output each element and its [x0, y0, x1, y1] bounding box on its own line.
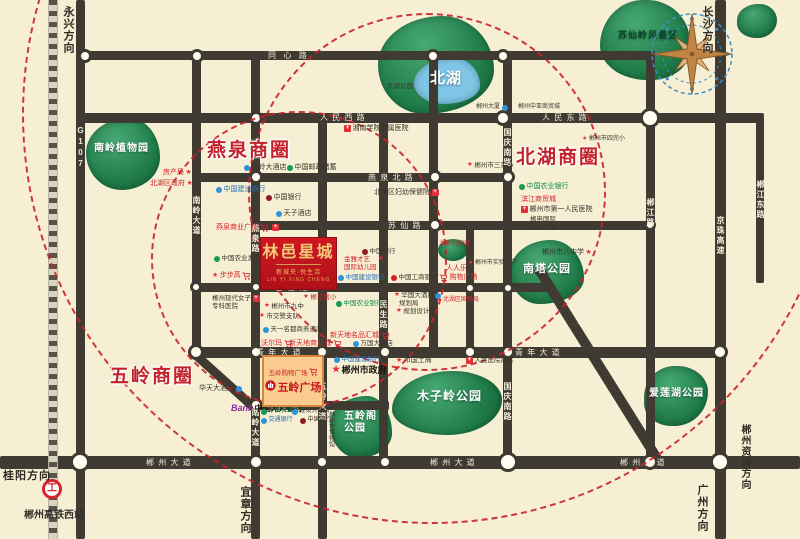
poi-text: 中国银行: [370, 248, 396, 256]
bank-dot-icon: [334, 357, 340, 363]
poi-label: 中国建设银行: [216, 186, 266, 195]
poi-text: 天子酒店: [284, 210, 312, 219]
direction-label: 广州方向: [694, 484, 710, 532]
business-district-label: 五岭商圈: [110, 361, 194, 388]
bank-dot-icon: [362, 249, 368, 255]
shopping-cart-icon: [381, 332, 390, 340]
poi-text: 郴江南小: [310, 294, 336, 302]
poi-label: +人民医院南院: [466, 357, 514, 365]
poi-text: 北湖公园: [387, 83, 413, 91]
bank-dot-icon: [292, 409, 298, 415]
road-label: 燕 泉 北 路: [368, 174, 414, 182]
star-icon: ★: [467, 162, 473, 169]
bank-dot-icon: [336, 301, 342, 307]
road-label: 郴 州 大 道: [430, 459, 476, 467]
poi-text: 中国建设银行: [346, 274, 385, 282]
poi-label: 郴州市博物馆: [326, 411, 334, 447]
wuling-plaza-block: 五岭购物广场 五岭广场: [262, 355, 324, 407]
poi-text: 湘南学院附属医院: [353, 125, 409, 134]
shopping-cart-icon: [333, 340, 342, 348]
bank-logo-icon: Bank: [231, 404, 253, 413]
road-label: G107: [76, 126, 84, 170]
park-label: 南岭植物园: [94, 143, 149, 155]
poi-label: 中国工商银行: [391, 274, 438, 282]
star-icon: ★: [396, 357, 402, 364]
poi-label: +郴州市第一人民医院: [521, 206, 593, 215]
hospital-cross-icon: +: [253, 295, 260, 302]
star-icon: ★: [396, 308, 402, 315]
poi-label: 房产局★: [163, 169, 192, 178]
road-junction: [710, 452, 730, 472]
poi-text: 中国农业银行: [344, 300, 383, 308]
poi-text: 华天大酒店: [199, 385, 234, 394]
star-icon: ★: [586, 249, 592, 256]
star-icon: ★: [259, 313, 265, 320]
poi-label: ★市国土局: [396, 357, 432, 366]
poi-text: 中国邮政储蓄: [295, 164, 337, 173]
poi-label: 郴电国际 翡翠广场: [530, 216, 556, 232]
poi-text: 郴州大厦: [476, 104, 500, 112]
poi-label: 燕泉商业广场: [216, 224, 269, 233]
poi-label: 北湖区政府★: [150, 180, 193, 189]
hospital-cross-icon: +: [272, 224, 279, 231]
bank-dot-icon: [502, 105, 508, 111]
park-label: 五岭阁 公园: [344, 411, 377, 434]
poi-label: 天子酒店: [276, 210, 312, 219]
bank-dot-icon: [261, 409, 267, 415]
poi-label: 万国大酒店: [353, 340, 393, 348]
road-label: 青 年 大 道: [515, 349, 561, 357]
poi-text: 交通银行: [269, 417, 293, 425]
bank-dot-icon: [216, 187, 222, 193]
star-icon: ★: [187, 180, 193, 187]
building-icon: [265, 380, 276, 394]
road-label: 人 民 西 路: [320, 114, 366, 122]
poi-text: 市国土局: [404, 357, 432, 366]
star-icon: ★: [212, 272, 218, 279]
poi-label: ★步步高: [212, 272, 251, 281]
bank-dot-icon: [300, 418, 306, 424]
poi-label: ★北湖区国税局: [436, 297, 479, 305]
road-label: 南岭大道: [192, 196, 200, 236]
road-label: 南塔路: [577, 296, 585, 326]
road-label: 国庆南路: [503, 382, 511, 422]
poi-label: ★市交警支队: [259, 313, 299, 321]
poi-label: 建设大酒店: [292, 408, 330, 416]
plaza-name-text: 五岭广场: [278, 379, 322, 395]
poi-text: 郴电国际 翡翠广场: [530, 216, 556, 232]
road-label: 郴 州 大 道: [146, 459, 192, 467]
road-label: 人 民 东 路: [542, 114, 588, 122]
poi-label: 北湖公园: [387, 83, 413, 91]
star-icon: ★: [303, 294, 309, 301]
poi-text: 郴州市实验中学: [475, 260, 517, 268]
poi-text: 郴州现代女子 专科医院: [212, 295, 251, 311]
road-label: 郴江路: [646, 198, 654, 228]
poi-text: 五岭大酒店: [252, 164, 287, 173]
poi-text: 燕泉商业广场: [216, 224, 258, 233]
poi-text: 新天地商业城: [289, 340, 331, 349]
poi-text: 购物广场: [450, 274, 478, 283]
road-junction: [70, 452, 90, 472]
poi-text: 金雅才艺 国际幼儿园: [344, 256, 377, 272]
poi-text: 天一名都商务酒店: [271, 326, 323, 334]
direction-label: 桂阳方向: [3, 467, 51, 483]
poi-text: 郴州市三完小: [474, 162, 513, 170]
road-label: 郴江东路: [756, 180, 764, 220]
poi-label: 中国银行: [362, 248, 396, 256]
poi-label: ★郴州市九中: [264, 303, 304, 311]
poi-text: 滨江商贸城: [521, 196, 556, 205]
poi-label: ★郴江南小: [303, 294, 336, 302]
project-slogan: 新城央·悦生活: [276, 264, 321, 276]
bank-dot-icon: [287, 165, 293, 171]
poi-label: 购物广场: [439, 274, 478, 283]
poi-label: ★郴州市政府: [332, 365, 387, 376]
road-label: 京珠高速: [716, 216, 724, 256]
poi-label: 北湖区妇幼保健院+: [374, 189, 439, 198]
star-icon: ★: [378, 256, 384, 263]
bank-dot-icon: [236, 386, 242, 392]
poi-text: 中国工商银行: [399, 274, 438, 282]
poi-label: 天一名都商务酒店: [263, 326, 323, 334]
poi-label: 新天地商业城: [289, 340, 342, 349]
hospital-cross-icon: +: [521, 206, 528, 213]
poi-text: 中国农业银行: [527, 183, 569, 192]
poi-label: 滨江商贸城: [521, 196, 556, 205]
poi-label: 中国农业银行: [336, 300, 383, 308]
hospital-cross-icon: +: [466, 357, 473, 364]
poi-text: 北湖区政府: [150, 180, 185, 189]
bank-dot-icon: [244, 165, 250, 171]
road-label: 郴 州 大 道: [620, 459, 666, 467]
poi-label: ★郴州市三完小: [467, 162, 513, 170]
bank-dot-icon: [276, 211, 282, 217]
hospital-cross-icon: +: [344, 125, 351, 132]
poi-label: ★华国大酒店: [394, 292, 441, 300]
poi-label: 中国建设银行: [334, 356, 381, 364]
project-name: 林邑星城: [262, 244, 334, 262]
poi-label: 龙泉小游园: [439, 241, 469, 249]
star-icon: ★: [468, 260, 473, 266]
bank-dot-icon: [261, 418, 267, 424]
poi-text: 市交警支队: [266, 313, 299, 321]
star-icon: ★: [186, 169, 192, 176]
direction-label: 宜章方向: [237, 486, 253, 534]
road-label: 苏 仙 路: [388, 222, 421, 230]
poi-text: 建设大酒店: [300, 408, 330, 416]
park-label: 木子岭公园: [417, 390, 482, 404]
poi-label: +二四零医院: [272, 224, 316, 233]
poi-text: 人民医院南院: [475, 357, 514, 365]
poi-text: 郴州市政府: [342, 365, 387, 376]
poi-label: ★郴州市实验中学: [468, 260, 517, 268]
bank-dot-icon: [435, 293, 441, 299]
poi-text: 郴州市九中: [271, 303, 304, 311]
map-canvas[interactable]: 林邑星城 新城央·悦生活 LIN YI XING CHENG 五岭购物广场 五岭…: [0, 0, 800, 539]
direction-label: 郴州资兴方向: [737, 424, 752, 490]
poi-text: 龙泉小游园: [439, 241, 469, 249]
poi-label: 中国银行: [266, 194, 302, 203]
star-icon: ★: [264, 303, 270, 310]
poi-label: 郴州市八中学★: [542, 249, 592, 258]
business-district-label: 北湖商圈: [516, 142, 600, 169]
poi-text: 中国建设银行: [342, 356, 381, 364]
direction-label: 长沙方向: [699, 6, 715, 54]
bank-dot-icon: [353, 341, 359, 347]
poi-text: 人人乐: [446, 265, 467, 274]
bank-dot-icon: [263, 327, 269, 333]
poi-label: +湘南学院附属医院: [344, 125, 409, 134]
plaza-shop-label: 五岭购物广场: [269, 367, 318, 377]
project-logo-block: 林邑星城 新城央·悦生活 LIN YI XING CHENG: [260, 237, 337, 290]
park-label: 爱莲湖公园: [649, 388, 704, 400]
train-station-label: 郴州高铁西站: [24, 506, 84, 521]
poi-text: 郴州市八中学: [542, 249, 584, 258]
poi-text: 万国大酒店: [361, 340, 394, 348]
poi-label: 中国农业银行: [519, 183, 569, 192]
star-icon: ★: [394, 292, 400, 299]
poi-label: 沃尔玛: [261, 340, 293, 349]
poi-label: 郴州中亚商贸城: [518, 104, 560, 112]
plaza-name: 五岭广场: [265, 379, 322, 395]
compass-rose-icon: [646, 8, 738, 105]
poi-label: 五岭大酒店: [244, 164, 287, 173]
bank-dot-icon: [266, 195, 272, 201]
bank-dot-icon: [338, 275, 344, 281]
bank-dot-icon: [391, 275, 397, 281]
shopping-cart-icon: [242, 272, 251, 280]
poi-text: 郴州中亚商贸城: [518, 104, 560, 112]
poi-text: 郴州市第一人民医院: [530, 206, 593, 215]
poi-text: 华国大酒店: [401, 292, 434, 300]
bank-dot-icon: [214, 256, 220, 262]
business-district-label: 燕泉商圈: [207, 135, 291, 162]
poi-text: 规划设计院: [403, 308, 436, 316]
poi-label: 中国邮政储蓄: [287, 164, 337, 173]
road-label: 南岭大道: [251, 408, 259, 448]
road-label: 同 心 路: [268, 52, 308, 60]
cart-icon: [309, 368, 318, 376]
poi-label: 金雅才艺 国际幼儿园★: [344, 256, 384, 272]
poi-text: 中国建设银行: [224, 186, 266, 195]
plaza-shop-text: 五岭购物广场: [269, 367, 308, 377]
poi-text: 二四零医院: [281, 224, 316, 233]
shopping-cart-icon: [439, 274, 448, 282]
direction-label: 永兴方向: [60, 6, 76, 54]
poi-label: ★规划设计院: [396, 308, 436, 316]
poi-label: 华天大酒店: [199, 385, 242, 394]
poi-text: 房产局: [163, 169, 184, 178]
poi-label: 人人乐: [446, 265, 467, 274]
star-icon: ★: [332, 365, 340, 374]
poi-text: 步步高: [220, 272, 241, 281]
poi-label: 交通银行: [261, 417, 293, 425]
bank-dot-icon: [519, 184, 525, 190]
project-name-en: LIN YI XING CHENG: [267, 277, 331, 283]
poi-label: 郴州大厦: [476, 104, 508, 112]
park-label: 北湖: [430, 70, 462, 87]
hospital-cross-icon: +: [432, 189, 439, 196]
shopping-cart-icon: [260, 224, 269, 232]
poi-text: 北湖区国税局: [443, 297, 479, 305]
poi-label: 郴州现代女子 专科医院+: [212, 295, 260, 311]
poi-text: 沃尔玛: [261, 340, 282, 349]
poi-text: 中国银行: [274, 194, 302, 203]
poi-label: 中国建设银行: [338, 274, 385, 282]
poi-text: 郴州市博物馆: [326, 411, 334, 447]
poi-text: 北湖区妇幼保健院: [374, 189, 430, 198]
park-label: 南塔公园: [523, 263, 571, 276]
